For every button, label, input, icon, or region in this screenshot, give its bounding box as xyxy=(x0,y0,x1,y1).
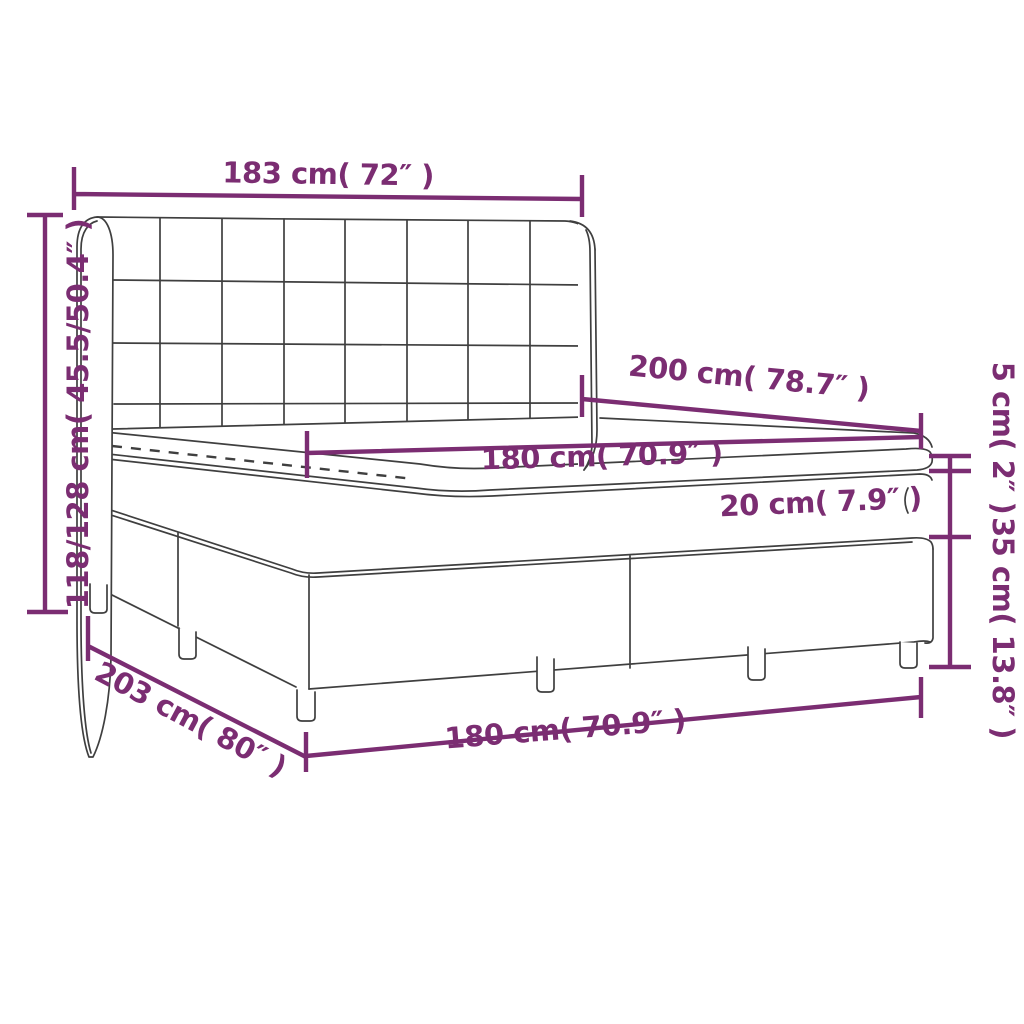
bed-width-label: 180 cm( 70.9″ ) xyxy=(443,703,687,756)
topper-height-label: 5 cm( 2″ ) xyxy=(986,362,1020,515)
bed-length-label: 203 cm( 80″ ) xyxy=(89,654,292,783)
bed-dimension-diagram: 183 cm( 72″ ) 118/128 cm( 45.5/50.4″ ) 2… xyxy=(0,0,1024,1024)
dimension-bed-height: 118/128 cm( 45.5/50.4″ ) xyxy=(27,215,95,612)
leg xyxy=(179,628,196,659)
leg xyxy=(537,657,554,692)
headboard-width-label: 183 cm( 72″ ) xyxy=(222,155,434,192)
dimension-bed-width: 180 cm( 70.9″ ) xyxy=(306,677,921,772)
mattress-top-width-label: 180 cm( 70.9″ ) xyxy=(480,436,723,477)
mattress-length-label: 200 cm( 78.7″ ) xyxy=(627,349,871,406)
leg xyxy=(900,642,917,668)
dimension-headboard-width: 183 cm( 72″ ) xyxy=(74,155,582,217)
base-height-label: 35 cm( 13.8″ ) xyxy=(986,517,1020,739)
leg xyxy=(297,690,315,721)
dimension-right-stack: 5 cm( 2″ ) 35 cm( 13.8″ ) xyxy=(929,362,1020,739)
leg xyxy=(748,647,765,680)
bed-height-label: 118/128 cm( 45.5/50.4″ ) xyxy=(61,219,95,610)
